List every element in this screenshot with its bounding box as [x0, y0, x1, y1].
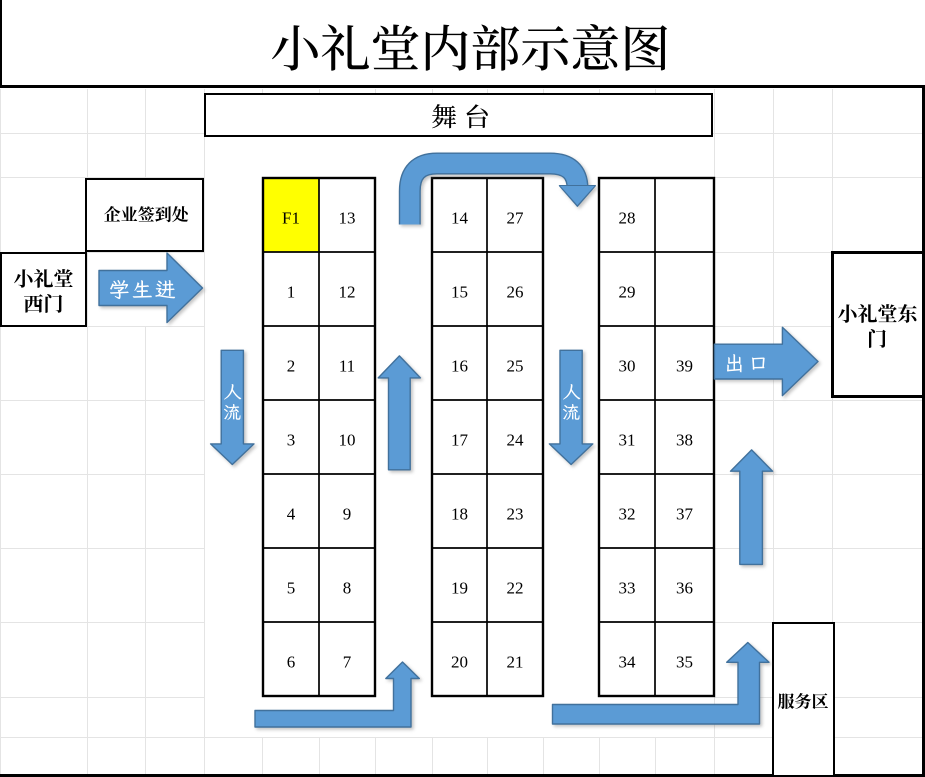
- svg-text:24: 24: [507, 431, 525, 450]
- svg-text:5: 5: [287, 579, 296, 598]
- svg-text:20: 20: [451, 653, 468, 672]
- svg-text:26: 26: [507, 283, 524, 302]
- svg-text:F1: F1: [282, 209, 300, 228]
- svg-text:36: 36: [676, 579, 693, 598]
- svg-text:1: 1: [287, 283, 296, 302]
- svg-text:33: 33: [619, 579, 636, 598]
- svg-text:17: 17: [451, 431, 469, 450]
- svg-text:19: 19: [451, 579, 468, 598]
- svg-text:11: 11: [339, 357, 355, 376]
- svg-text:32: 32: [619, 505, 636, 524]
- svg-text:37: 37: [676, 505, 694, 524]
- svg-text:10: 10: [339, 431, 356, 450]
- svg-text:31: 31: [619, 431, 636, 450]
- svg-text:30: 30: [619, 357, 636, 376]
- svg-text:2: 2: [287, 357, 296, 376]
- svg-text:8: 8: [343, 579, 352, 598]
- svg-text:16: 16: [451, 357, 468, 376]
- svg-text:29: 29: [619, 283, 636, 302]
- svg-text:15: 15: [451, 283, 468, 302]
- svg-text:39: 39: [676, 357, 693, 376]
- svg-text:18: 18: [451, 505, 468, 524]
- svg-text:25: 25: [507, 357, 524, 376]
- svg-text:23: 23: [507, 505, 524, 524]
- svg-text:38: 38: [676, 431, 693, 450]
- svg-text:4: 4: [287, 505, 296, 524]
- svg-text:13: 13: [339, 209, 356, 228]
- svg-text:28: 28: [619, 209, 636, 228]
- svg-text:3: 3: [287, 431, 296, 450]
- svg-text:22: 22: [507, 579, 524, 598]
- svg-text:12: 12: [339, 283, 356, 302]
- svg-text:21: 21: [507, 653, 524, 672]
- svg-text:9: 9: [343, 505, 352, 524]
